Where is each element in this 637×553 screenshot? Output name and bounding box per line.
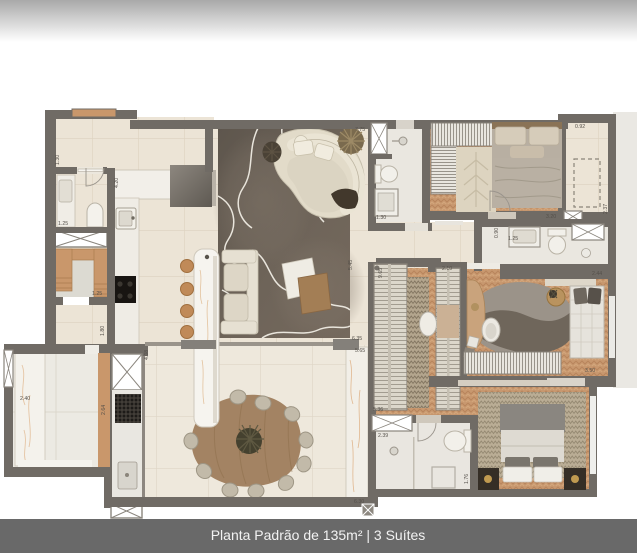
svg-text:1.76: 1.76 (464, 474, 470, 484)
svg-text:0.92: 0.92 (575, 124, 585, 130)
svg-text:4.20: 4.20 (114, 178, 120, 188)
svg-text:4.08: 4.08 (144, 350, 150, 360)
svg-text:3.50: 3.50 (585, 368, 595, 374)
svg-text:2.40: 2.40 (20, 396, 30, 402)
svg-text:1.80: 1.80 (100, 326, 106, 336)
svg-text:Planta Padrão de 135m² | 3 Suí: Planta Padrão de 135m² | 3 Suítes (211, 527, 426, 543)
svg-text:5.36: 5.36 (373, 407, 383, 413)
svg-text:6.30: 6.30 (354, 499, 364, 505)
svg-text:2.44: 2.44 (592, 271, 602, 277)
svg-text:5.45: 5.45 (348, 260, 354, 270)
svg-text:3.20: 3.20 (546, 214, 556, 220)
svg-text:1.25: 1.25 (92, 291, 102, 297)
svg-text:1.30: 1.30 (376, 215, 386, 221)
svg-text:2.10: 2.10 (442, 266, 452, 272)
svg-text:0.90: 0.90 (494, 228, 500, 238)
svg-text:7.75: 7.75 (355, 127, 365, 133)
svg-text:5.65: 5.65 (355, 348, 365, 354)
svg-text:2.64: 2.64 (101, 405, 107, 415)
svg-text:2.39: 2.39 (378, 433, 388, 439)
svg-text:1.30: 1.30 (55, 155, 61, 165)
svg-text:6.35: 6.35 (352, 336, 362, 342)
svg-text:9.65: 9.65 (378, 268, 384, 278)
svg-text:1.25: 1.25 (508, 236, 518, 242)
svg-text:2.37: 2.37 (603, 204, 609, 214)
svg-text:1.25: 1.25 (58, 221, 68, 227)
